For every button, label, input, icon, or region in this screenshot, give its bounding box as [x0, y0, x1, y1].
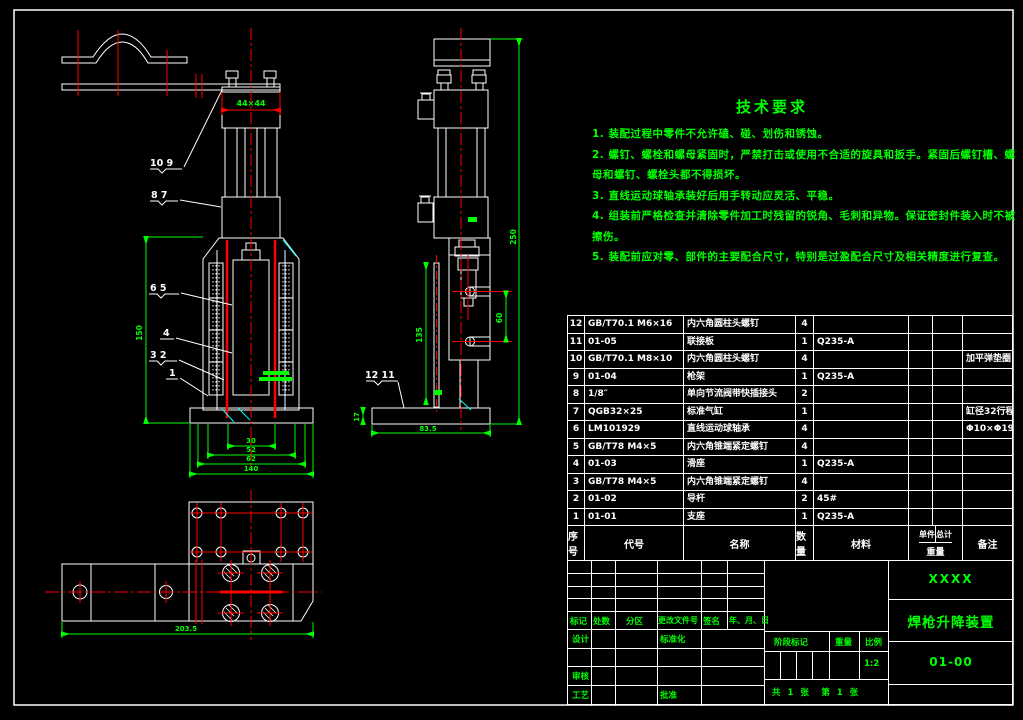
bom-header-seq: 序号: [568, 526, 585, 561]
bom-code: 01-01: [585, 509, 684, 527]
weight-label: 重量: [835, 636, 852, 648]
dim-bottom-width: 203.5: [175, 625, 197, 633]
bom-remark: [963, 491, 1013, 509]
table-row: 101-01支座1Q235-A: [568, 509, 1013, 527]
dim-front-height: 150: [135, 325, 144, 341]
bom-table: 12GB/T70.1 M6×16内六角圆柱头螺钉4 1101-05联接板1Q23…: [567, 315, 1013, 561]
bom-header-material: 材料: [814, 526, 909, 561]
bom-seq: 5: [568, 439, 585, 457]
bom-name: 联接板: [684, 334, 796, 352]
check-label: 审核: [572, 670, 589, 682]
bom-unit: [909, 404, 933, 422]
bom-material: Q235-A: [814, 369, 909, 387]
bom-material: Q235-A: [814, 334, 909, 352]
bom-header-weight: 重量: [926, 543, 944, 560]
bom-total: [933, 456, 963, 474]
standardize-label: 标准化: [660, 633, 686, 645]
bom-remark: [963, 456, 1013, 474]
bom-name: 支座: [684, 509, 796, 527]
bom-unit: [909, 474, 933, 492]
bom-unit: [909, 316, 933, 334]
bom-qty: 1: [796, 509, 814, 527]
dim-side-base-h: 17: [353, 412, 361, 422]
bom-name: 内六角圆柱头螺钉: [684, 316, 796, 334]
bom-name: 枪架: [684, 369, 796, 387]
bom-total: [933, 369, 963, 387]
dim-side-base-w: 83.5: [419, 425, 436, 433]
balloon-8-7: 8 7: [151, 190, 168, 201]
bom-name: 内六角圆柱头螺钉: [684, 351, 796, 369]
table-row: 10GB/T70.1 M8×10内六角圆柱头螺钉4加平弹垫圈: [568, 351, 1013, 369]
bom-remark: [963, 509, 1013, 527]
bom-material: Q235-A: [814, 509, 909, 527]
bom-qty: 4: [796, 351, 814, 369]
table-row: 6LM101929直线运动球轴承4Φ10×Φ19×29: [568, 421, 1013, 439]
bom-total: [933, 491, 963, 509]
bom-header-qty: 数量: [796, 526, 814, 561]
bom-name: 内六角锥端紧定螺钉: [684, 439, 796, 457]
rev-count-label: 处数: [593, 615, 610, 627]
cad-sheet: 44×44 150 30 52 62 140: [0, 0, 1023, 720]
bom-code: QGB32×25: [585, 404, 684, 422]
tech-req-item: 2. 螺钉、螺栓和螺母紧固时，严禁打击或使用不合适的旋具和扳手。紧固后螺钉槽、螺…: [592, 145, 1016, 186]
bom-material: 45#: [814, 491, 909, 509]
tech-req-title: 技术要求: [662, 96, 882, 117]
scale-value: 1:2: [864, 659, 879, 669]
balloon-10-9: 10 9: [150, 158, 173, 169]
bom-remark: [963, 369, 1013, 387]
bom-code: 01-03: [585, 456, 684, 474]
rev-zone-label: 分区: [626, 615, 643, 627]
bom-code: GB/T70.1 M8×10: [585, 351, 684, 369]
balloon-12-11: 12 11: [365, 370, 395, 381]
dim-front-top: 44×44: [237, 99, 266, 108]
dim-front-base-3: 62: [246, 455, 256, 463]
bom-total: [933, 386, 963, 404]
bom-unit: [909, 456, 933, 474]
sheet-info: 共 1 张 第 1 张: [772, 686, 860, 698]
table-row: 1101-05联接板1Q235-A: [568, 334, 1013, 352]
table-row: 401-03滑座1Q235-A: [568, 456, 1013, 474]
bom-name: 导杆: [684, 491, 796, 509]
bom-remark: [963, 316, 1013, 334]
bom-name: 标准气缸: [684, 404, 796, 422]
bom-remark: Φ10×Φ19×29: [963, 421, 1013, 439]
bom-seq: 9: [568, 369, 585, 387]
table-row: 3GB/T78 M4×5内六角锥端紧定螺钉4: [568, 474, 1013, 492]
bom-qty: 4: [796, 316, 814, 334]
bom-seq: 3: [568, 474, 585, 492]
bom-seq: 7: [568, 404, 585, 422]
bom-total: [933, 421, 963, 439]
bom-qty: 4: [796, 439, 814, 457]
rev-date-label: 年、月、日: [729, 615, 769, 626]
bom-total: [933, 509, 963, 527]
balloon-1: 1: [169, 368, 176, 379]
bom-seq: 12: [568, 316, 585, 334]
balloon-4: 4: [163, 328, 170, 339]
bom-qty: 1: [796, 404, 814, 422]
bom-material: [814, 421, 909, 439]
dim-side-height: 250: [509, 229, 518, 245]
bom-code: 01-02: [585, 491, 684, 509]
table-row: 7QGB32×25标准气缸1缸径32行程25: [568, 404, 1013, 422]
bom-qty: 4: [796, 474, 814, 492]
bom-seq: 1: [568, 509, 585, 527]
bom-qty: 1: [796, 369, 814, 387]
bom-header-name: 名称: [684, 526, 796, 561]
bom-header-total: 总计: [936, 526, 952, 543]
tech-req-item: 4. 组装前严格检查并清除零件加工时残留的锐角、毛刺和异物。保证密封件装入时不被…: [592, 206, 1016, 247]
bom-unit: [909, 439, 933, 457]
table-row: 201-02导杆245#: [568, 491, 1013, 509]
dim-side-pitch: 60: [495, 313, 504, 323]
bom-total: [933, 351, 963, 369]
bom-remark: [963, 439, 1013, 457]
bom-total: [933, 334, 963, 352]
dim-side-guide: 135: [415, 327, 424, 343]
bom-material: [814, 474, 909, 492]
stage-mark-label: 阶段标记: [774, 636, 808, 648]
bom-seq: 2: [568, 491, 585, 509]
bom-total: [933, 474, 963, 492]
bom-name: 滑座: [684, 456, 796, 474]
bom-header-row: 序号 代号 名称 数量 材料 单件 总计 重量 备注: [568, 526, 1013, 561]
bom-code: LM101929: [585, 421, 684, 439]
bom-code: GB/T78 M4×5: [585, 439, 684, 457]
bom-seq: 10: [568, 351, 585, 369]
bom-qty: 1: [796, 456, 814, 474]
bom-material: [814, 316, 909, 334]
dim-front-base-4: 140: [244, 465, 259, 473]
bom-name: 单向节流阀带快插接头: [684, 386, 796, 404]
tech-req-item: 3. 直线运动球轴承装好后用手转动应灵活、平稳。: [592, 186, 1016, 207]
bom-seq: 8: [568, 386, 585, 404]
bom-code: 1/8″: [585, 386, 684, 404]
bom-seq: 11: [568, 334, 585, 352]
bom-total: [933, 404, 963, 422]
front-view: 44×44 150 30 52 62 140: [135, 28, 313, 478]
table-row: 81/8″单向节流阀带快插接头2: [568, 386, 1013, 404]
scale-label: 比例: [865, 636, 882, 648]
bom-seq: 6: [568, 421, 585, 439]
drawing-title: 焊枪升降装置: [888, 611, 1014, 631]
bottom-view: 203.5: [45, 490, 322, 640]
table-row: 5GB/T78 M4×5内六角锥端紧定螺钉4: [568, 439, 1013, 457]
bom-material: [814, 439, 909, 457]
bom-qty: 2: [796, 491, 814, 509]
bom-header-unit: 单件: [919, 526, 936, 543]
approve-label: 批准: [660, 689, 677, 701]
bom-remark: [963, 334, 1013, 352]
bom-unit: [909, 334, 933, 352]
process-label: 工艺: [572, 689, 589, 701]
bom-unit: [909, 369, 933, 387]
bom-code: 01-04: [585, 369, 684, 387]
rev-sign-label: 签名: [703, 615, 720, 627]
side-view: 250 60 135 17 83.5 12 11: [353, 28, 522, 437]
bom-unit: [909, 351, 933, 369]
bom-unit: [909, 491, 933, 509]
bom-header-code: 代号: [585, 526, 684, 561]
bom-name: 直线运动球轴承: [684, 421, 796, 439]
bom-header-remark: 备注: [963, 526, 1013, 561]
tech-req-item: 5. 装配前应对零、部件的主要配合尺寸，特别是过盈配合尺寸及相关精度进行复查。: [592, 247, 1016, 268]
bom-total: [933, 316, 963, 334]
bom-unit: [909, 386, 933, 404]
table-row: 12GB/T70.1 M6×16内六角圆柱头螺钉4: [568, 316, 1013, 334]
rev-docno-label: 更改文件号: [658, 615, 698, 626]
bom-code: GB/T78 M4×5: [585, 474, 684, 492]
design-label: 设计: [572, 633, 589, 645]
dim-front-base-1: 30: [246, 437, 256, 445]
bom-material: Q235-A: [814, 456, 909, 474]
bom-unit: [909, 421, 933, 439]
title-block: 标记 处数 分区 更改文件号 签名 年、月、日 设计 标准化 审核 工艺 批准 …: [567, 560, 1013, 705]
bom-qty: 2: [796, 386, 814, 404]
bom-material: [814, 404, 909, 422]
bom-seq: 4: [568, 456, 585, 474]
bom-remark: [963, 386, 1013, 404]
tech-req-list: 1. 装配过程中零件不允许磕、碰、划伤和锈蚀。 2. 螺钉、螺栓和螺母紧固时，严…: [592, 124, 1016, 268]
bom-remark: 加平弹垫圈: [963, 351, 1013, 369]
dim-front-base-2: 52: [246, 446, 256, 454]
balloon-3-2: 3 2: [150, 350, 167, 361]
rev-mark-label: 标记: [570, 615, 587, 627]
bom-name: 内六角锥端紧定螺钉: [684, 474, 796, 492]
bom-unit: [909, 509, 933, 527]
tech-req-item: 1. 装配过程中零件不允许磕、碰、划伤和锈蚀。: [592, 124, 1016, 145]
bom-code: 01-05: [585, 334, 684, 352]
bom-material: [814, 351, 909, 369]
drawing-number: 01-00: [888, 655, 1014, 669]
bom-code: GB/T70.1 M6×16: [585, 316, 684, 334]
bom-remark: [963, 474, 1013, 492]
bom-remark: 缸径32行程25: [963, 404, 1013, 422]
clamp-view: [62, 30, 280, 98]
company-name: XXXX: [888, 572, 1014, 586]
bom-qty: 1: [796, 334, 814, 352]
bom-material: [814, 386, 909, 404]
bom-qty: 4: [796, 421, 814, 439]
bom-total: [933, 439, 963, 457]
table-row: 901-04枪架1Q235-A: [568, 369, 1013, 387]
balloon-6-5: 6 5: [150, 283, 167, 294]
bom-header-weight-group: 单件 总计 重量: [909, 526, 963, 561]
